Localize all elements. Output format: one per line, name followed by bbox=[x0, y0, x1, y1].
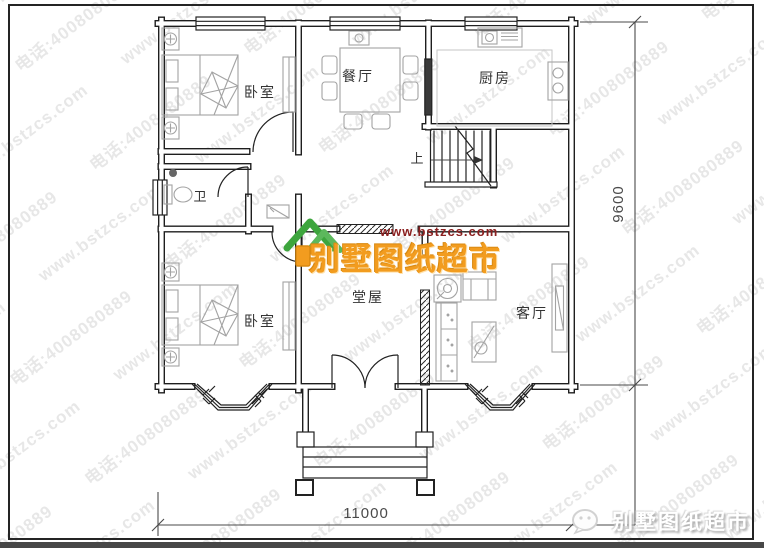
dimension-height-label: 9600 bbox=[610, 185, 627, 222]
door-bedroom-top bbox=[253, 112, 293, 152]
dimension-width-label: 11000 bbox=[343, 505, 389, 522]
stairs-landing bbox=[425, 182, 497, 187]
room-label-living: 客厅 bbox=[516, 305, 548, 322]
porch-column-right bbox=[416, 432, 433, 447]
door-bathroom bbox=[218, 167, 248, 197]
bed-bottom-icon bbox=[162, 263, 238, 366]
stairs-up-label: 上 bbox=[410, 151, 423, 166]
porch-column-base-left bbox=[296, 480, 313, 495]
porch-column-base-right bbox=[417, 480, 434, 495]
window-bedroom-top-icon bbox=[196, 17, 265, 30]
porch-column-left bbox=[297, 432, 314, 447]
door-kitchen-sliding bbox=[425, 59, 432, 115]
stairs-break-line bbox=[455, 126, 491, 186]
room-label-dining: 餐厅 bbox=[342, 69, 374, 85]
window-dining-icon bbox=[330, 17, 400, 30]
room-label-hall: 堂屋 bbox=[352, 290, 384, 306]
living-furniture-icon bbox=[434, 264, 567, 381]
corner-brand: 别墅图纸超市 bbox=[570, 506, 750, 536]
room-label-kitchen: 厨房 bbox=[479, 71, 511, 87]
toilet-icon bbox=[164, 169, 192, 204]
hatched-wall-hall bbox=[337, 225, 393, 234]
stairs bbox=[425, 126, 497, 187]
room-label-bedroom-top: 卧室 bbox=[244, 84, 276, 101]
bay-window-left bbox=[192, 384, 272, 410]
bay-window-right bbox=[465, 384, 535, 410]
room-label-bedroom-bottom: 卧室 bbox=[244, 313, 276, 330]
door-entrance-double bbox=[332, 355, 398, 388]
entrance-porch bbox=[296, 432, 434, 495]
room-label-bathroom: 卫 bbox=[193, 189, 206, 204]
floorplan-page: www.bstzcs.com www.bstzcs.com www.bstzcs… bbox=[0, 0, 764, 548]
hatched-wall-living bbox=[421, 290, 430, 385]
porch-steps bbox=[303, 447, 427, 478]
bed-top-icon bbox=[162, 28, 238, 139]
floor-plan-drawing: 11000 9600 卧室 餐厅 厨房 卫 上 堂屋 卧室 客厅 bbox=[0, 0, 764, 548]
bottom-dark-bar bbox=[0, 542, 764, 548]
wechat-logo-icon bbox=[570, 507, 604, 535]
corner-brand-text: 别墅图纸超市 bbox=[612, 506, 750, 536]
